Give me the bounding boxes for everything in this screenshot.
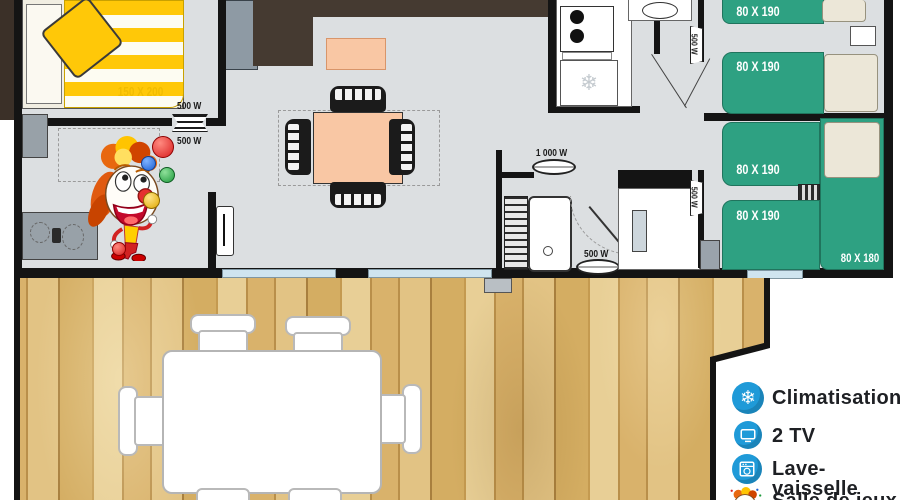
- towel-radiator: [504, 196, 528, 270]
- wall-shelf: [22, 114, 48, 158]
- window: [368, 269, 492, 278]
- juggling-ball-green: [159, 167, 175, 183]
- dining-chair: [330, 86, 386, 112]
- master-bed-size-label: 150 X 200: [112, 86, 169, 99]
- nightstand: [850, 26, 876, 46]
- door-handle: [223, 214, 225, 246]
- juggling-ball-red: [112, 242, 126, 256]
- sliding-door: [216, 206, 234, 256]
- kitchen-sink: [642, 2, 678, 19]
- exterior-trim: [0, 0, 14, 120]
- bed-size-label: 80 X 190: [731, 60, 785, 74]
- bathtub: [528, 196, 572, 272]
- dining-chair: [389, 119, 415, 175]
- wall: [548, 106, 640, 113]
- wall: [208, 192, 216, 268]
- wall: [496, 150, 502, 268]
- bed-pillow: [824, 122, 880, 178]
- radiator-power-label: 500 W: [574, 249, 618, 260]
- fridge: ❄: [560, 60, 618, 106]
- legend: ❄ Climatisation 2 TV Lave-vaisselle Sall…: [716, 360, 900, 500]
- radiator-power-label: 500 W: [684, 26, 704, 62]
- juggling-ball-red: [152, 136, 174, 158]
- stove-burner: [570, 29, 584, 43]
- bed-pillow: [822, 0, 866, 22]
- dining-chair: [285, 119, 311, 175]
- stove-burner: [570, 10, 584, 24]
- window: [747, 270, 803, 279]
- wc-mirror: [632, 210, 647, 252]
- stove: [560, 6, 614, 52]
- dishwasher-icon: [732, 454, 762, 484]
- deck-step: [484, 278, 512, 293]
- clown-icon: [726, 486, 764, 500]
- legend-label: Climatisation: [772, 388, 900, 408]
- bathtub-drain: [543, 246, 553, 256]
- wall: [548, 0, 556, 112]
- wall: [496, 172, 534, 178]
- bed-pillow: [824, 54, 878, 112]
- bed-size-label: 80 X 190: [731, 209, 785, 223]
- juggling-ball-yellow: [143, 192, 160, 209]
- deck-chair-seat: [288, 488, 342, 500]
- wall: [14, 0, 22, 268]
- legend-label: 2 TV: [772, 426, 815, 446]
- wall: [884, 0, 893, 278]
- radiator-power-label: 1 000 W: [528, 148, 576, 159]
- mobil-home-floor-plan: 150 X 200 500 W 500 W: [0, 0, 900, 500]
- legend-label: Salle de jeux: [772, 491, 897, 500]
- oven-line: [562, 52, 612, 60]
- coffee-table: [326, 38, 386, 70]
- dining-chair: [330, 182, 386, 208]
- deck-chair-seat: [196, 488, 250, 500]
- radiator-power-label: 500 W: [168, 101, 210, 112]
- bed-size-label: 80 X 190: [731, 5, 785, 19]
- juggling-ball-blue: [141, 156, 156, 171]
- vanity-stool: [30, 222, 50, 243]
- radiator: [576, 259, 620, 275]
- bed-size-label: 80 X 180: [836, 252, 884, 264]
- snowflake-icon: ❄: [732, 382, 764, 414]
- hairdryer: [52, 228, 61, 243]
- tv-icon: [734, 421, 762, 449]
- wall: [618, 170, 692, 188]
- bed-size-label: 80 X 190: [731, 163, 785, 177]
- radiator: [532, 159, 576, 175]
- radiator-power-label: 500 W: [684, 180, 704, 214]
- window: [222, 269, 336, 278]
- deck-table: [162, 350, 382, 494]
- wall: [206, 118, 226, 126]
- sofa: [253, 0, 548, 17]
- wall: [218, 0, 226, 122]
- storage-box: [700, 240, 720, 270]
